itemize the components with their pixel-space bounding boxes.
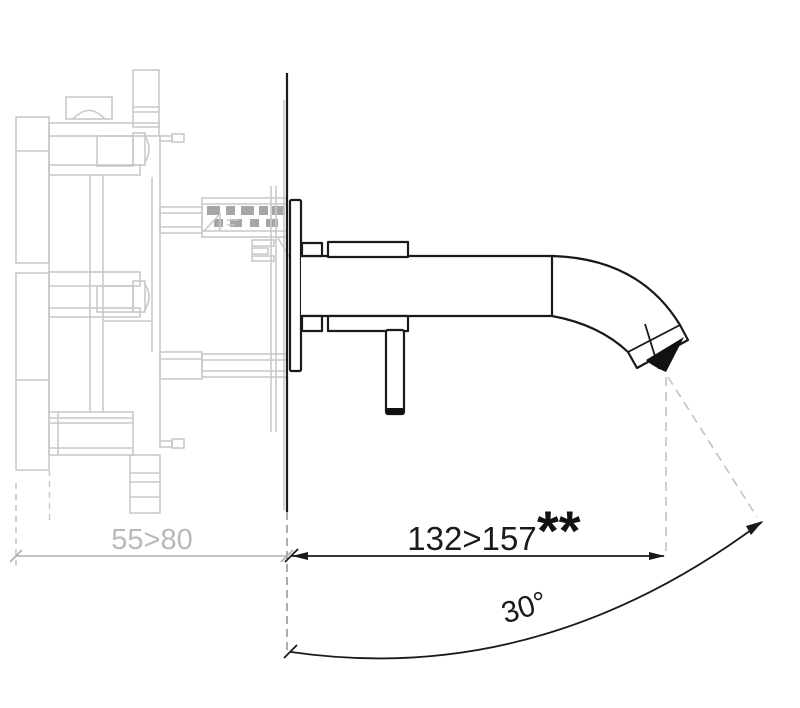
dim-label-spout-reach: 132>157: [407, 520, 536, 557]
projection-line-diagonal: [668, 377, 757, 517]
wall-plate: [290, 200, 301, 371]
ghost-top-pipe: [133, 70, 159, 127]
dim-footnote-asterisks: **: [537, 499, 581, 562]
ghost-bottom-block: [130, 455, 160, 513]
dim-arrow-right: [649, 552, 665, 560]
ghost-arch: [73, 111, 105, 120]
lever-handle-tip: [386, 408, 405, 415]
mixer-trim: [290, 200, 688, 415]
dim-label-wall-depth: 55>80: [111, 524, 192, 556]
collar-upper-nut: [328, 242, 408, 257]
drawing-stage: 55>80 132>157 ** 30°: [0, 0, 800, 708]
ghost-arch-box: [66, 97, 112, 119]
ghost-left-column-upper: [16, 117, 49, 263]
spout-body-fill: [301, 257, 553, 315]
dimension-wall-depth: 55>80: [10, 483, 293, 570]
collar-lower-small: [302, 316, 322, 331]
collar-lower-nut: [328, 316, 408, 331]
lever-handle: [386, 330, 404, 414]
concealed-valve-ghost: [16, 70, 290, 524]
angle-label: 30°: [498, 586, 551, 631]
collar-upper-small: [302, 243, 322, 256]
drawing-canvas: 55>80 132>157 ** 30°: [0, 0, 800, 708]
dimension-spout-reach: 132>157 **: [285, 499, 665, 562]
ghost-wall-union-lower: [202, 354, 287, 377]
arc-tick-left: [284, 645, 297, 658]
ghost-left-column-lower: [16, 273, 49, 470]
